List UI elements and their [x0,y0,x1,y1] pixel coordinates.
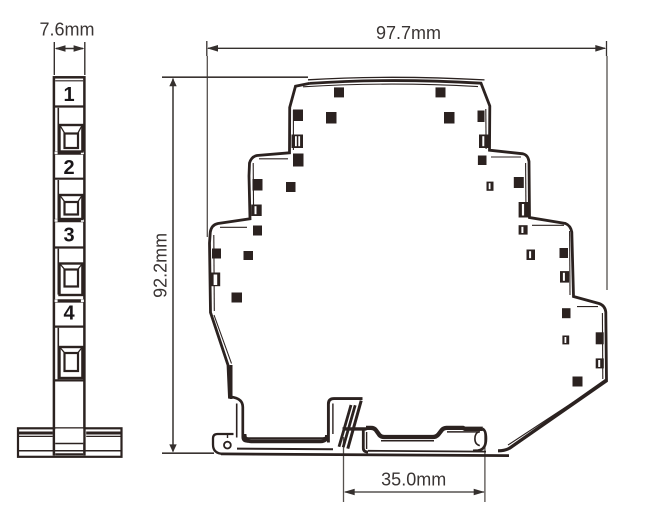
svg-text:3: 3 [63,225,74,247]
svg-text:7.6mm: 7.6mm [39,20,94,40]
svg-text:4: 4 [63,303,75,325]
svg-text:2: 2 [63,157,74,179]
svg-text:97.7mm: 97.7mm [376,23,441,43]
svg-text:92.2mm: 92.2mm [151,233,171,298]
svg-text:35.0mm: 35.0mm [381,470,446,490]
svg-text:1: 1 [63,84,74,106]
